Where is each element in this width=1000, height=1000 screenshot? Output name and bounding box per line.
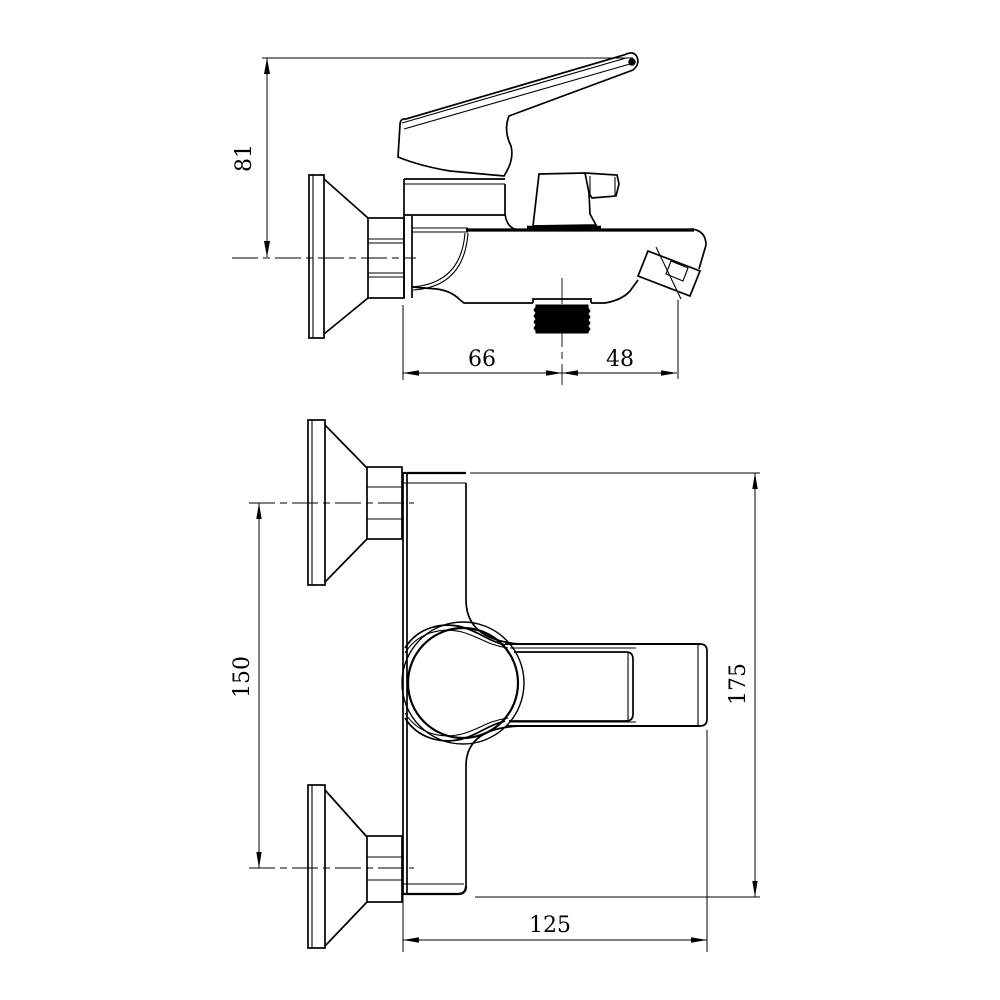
dim-175-extensions [470, 473, 760, 897]
body-plate-bottom-heavy [403, 886, 466, 894]
flange-bottom-plate [308, 785, 325, 948]
dim-175: 175 [470, 473, 760, 897]
handle-right-end [692, 644, 707, 726]
dim-150-arrow-down [256, 852, 261, 868]
body-spout-arc [411, 233, 468, 290]
cartridge-circle-inner [408, 628, 518, 738]
dim-48-label: 48 [606, 347, 634, 372]
handle-pad [509, 652, 633, 721]
dim-150: 150 [230, 503, 262, 868]
body-plate-left-edges [403, 473, 407, 895]
dim-175-arrow-down [752, 881, 757, 897]
aerator-cap [666, 261, 688, 281]
dim-125: 125 [403, 730, 707, 952]
dim-81-label: 81 [232, 144, 257, 172]
cartridge-circle-outer [402, 622, 524, 744]
spout-tip-edge [692, 229, 706, 269]
lever-tip-dot [629, 59, 635, 65]
flange-cone [324, 179, 368, 334]
dim-48-arrow-right [661, 370, 677, 375]
cartridge-circle [402, 622, 524, 744]
flange-top-cone [325, 425, 367, 582]
hex-nut [368, 179, 412, 298]
dim-66-label: 66 [468, 347, 496, 372]
dim-175-label: 175 [726, 663, 751, 705]
flange-bottom-nut [367, 836, 402, 902]
dim-81-arrow-down [264, 241, 270, 257]
diverter-body [533, 173, 596, 226]
dim-125-arrow-left [403, 937, 419, 942]
body-plate [403, 473, 520, 895]
aerator-axis-line [656, 247, 681, 299]
wall-flange [309, 175, 368, 338]
spout-body [412, 228, 706, 303]
lever-outline [398, 53, 638, 176]
flange-top-plate [308, 420, 325, 585]
aerator [638, 247, 700, 299]
dim-66-arrow-left [403, 370, 419, 375]
body-right-edge [505, 184, 517, 230]
lever-inner-lines [402, 58, 630, 129]
diverter-knob [527, 173, 619, 228]
mounting-flange-top [308, 420, 402, 585]
dim-150-arrow-up [256, 503, 261, 519]
handle-edge-inners [510, 648, 636, 722]
flange-plate [309, 175, 324, 338]
shower-outlet-thread [534, 278, 590, 385]
drawing-canvas: 81 66 48 [0, 0, 1000, 1000]
dim-175-arrow-up [752, 473, 757, 489]
collar [404, 179, 412, 298]
body-plate-right-bottom-fillet [466, 726, 520, 886]
handle-edges [505, 644, 700, 726]
lever-handle [398, 53, 638, 176]
faucet-technical-drawing: 81 66 48 [0, 0, 1000, 1000]
dim-48-arrow-left [562, 370, 578, 375]
side-view: 81 66 48 [232, 53, 706, 385]
dim-150-label: 150 [230, 656, 255, 698]
cartridge-body [404, 179, 517, 290]
diverter-inner-lines [590, 176, 615, 197]
mounting-flange-bottom [308, 785, 402, 948]
front-view: 150 175 125 [230, 420, 760, 952]
lever-handle-front [505, 644, 707, 726]
dim-66-arrow-right [546, 370, 562, 375]
dim-125-arrow-right [691, 937, 707, 942]
spout-bottom-profile [412, 280, 638, 303]
dim-125-label: 125 [529, 913, 571, 938]
spout-top-thin [412, 228, 468, 232]
dim-81-arrow-up [264, 58, 270, 74]
body-plate-right-top-fillet [466, 483, 520, 644]
flange-bottom-nut-facets [367, 857, 402, 880]
